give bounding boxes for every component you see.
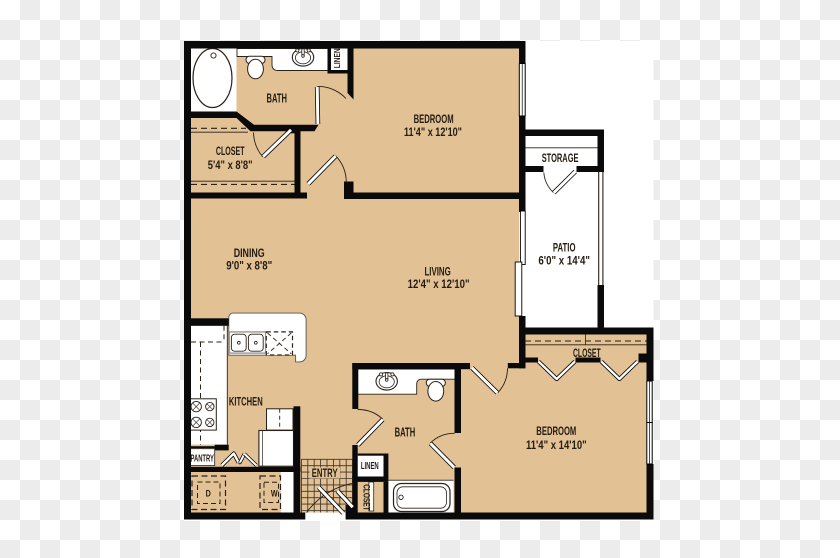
svg-text:CLOSET: CLOSET bbox=[361, 484, 371, 511]
svg-text:STORAGE: STORAGE bbox=[542, 151, 579, 165]
svg-text:11'4" x 12'10": 11'4" x 12'10" bbox=[404, 125, 462, 139]
svg-text:BEDROOM: BEDROOM bbox=[414, 112, 454, 126]
svg-text:LINEN: LINEN bbox=[361, 461, 379, 472]
svg-text:5'4" x 8'8": 5'4" x 8'8" bbox=[208, 158, 253, 172]
svg-text:CLOSET: CLOSET bbox=[216, 144, 245, 158]
svg-text:6'0" x 14'4": 6'0" x 14'4" bbox=[538, 253, 590, 267]
svg-text:11'4" x 14'10": 11'4" x 14'10" bbox=[526, 438, 587, 452]
svg-text:BATH: BATH bbox=[267, 91, 287, 106]
svg-text:PANTRY: PANTRY bbox=[191, 453, 215, 464]
svg-text:ENTRY: ENTRY bbox=[312, 466, 338, 480]
svg-text:9'0" x 8'8": 9'0" x 8'8" bbox=[226, 258, 272, 272]
svg-text:BATH: BATH bbox=[395, 425, 416, 440]
svg-text:D: D bbox=[206, 489, 211, 499]
svg-text:W: W bbox=[271, 489, 278, 499]
svg-text:12'4" x 12'10": 12'4" x 12'10" bbox=[408, 277, 470, 291]
svg-text:BEDROOM: BEDROOM bbox=[536, 424, 576, 438]
svg-text:LINEN: LINEN bbox=[333, 48, 342, 68]
svg-text:KITCHEN: KITCHEN bbox=[229, 394, 263, 408]
